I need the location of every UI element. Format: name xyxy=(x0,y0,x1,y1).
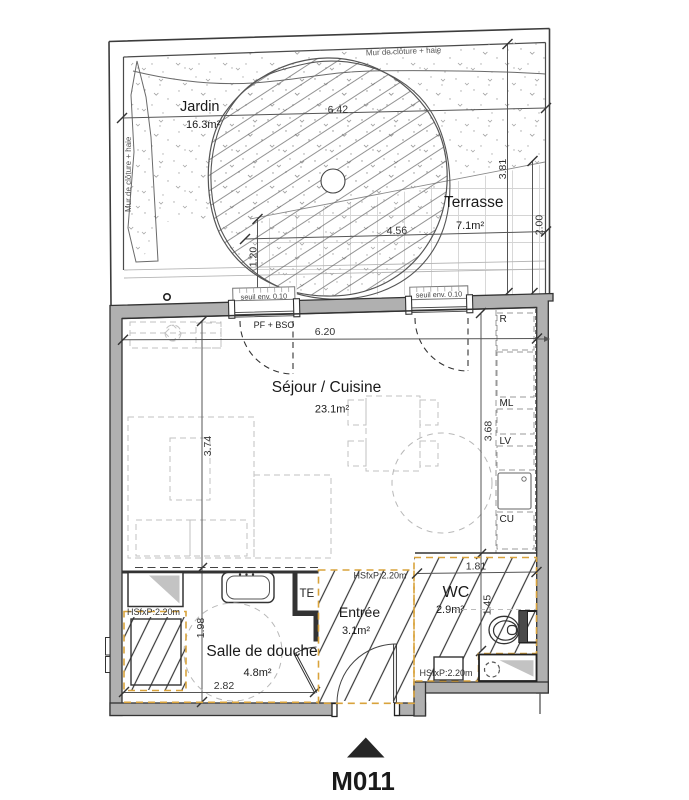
svg-text:LV: LV xyxy=(500,436,512,447)
svg-text:Entrée: Entrée xyxy=(339,604,380,620)
svg-text:HSfxP:2.20m: HSfxP:2.20m xyxy=(127,607,180,617)
svg-text:1.20: 1.20 xyxy=(248,247,260,268)
svg-text:16.3m²: 16.3m² xyxy=(186,119,221,131)
svg-text:2.9m²: 2.9m² xyxy=(436,604,464,616)
svg-text:Terrasse: Terrasse xyxy=(444,194,503,211)
svg-text:ML: ML xyxy=(500,398,514,409)
svg-text:6.20: 6.20 xyxy=(315,326,336,338)
svg-text:2.00: 2.00 xyxy=(534,215,546,236)
svg-text:3.74: 3.74 xyxy=(202,436,214,457)
svg-text:M011: M011 xyxy=(331,766,395,796)
svg-text:6.42: 6.42 xyxy=(328,104,349,116)
svg-text:2.82: 2.82 xyxy=(214,680,235,692)
svg-text:CU: CU xyxy=(500,514,514,525)
svg-text:Séjour / Cuisine: Séjour / Cuisine xyxy=(272,379,381,396)
svg-text:3.81: 3.81 xyxy=(497,159,509,180)
svg-text:3.1m²: 3.1m² xyxy=(342,625,370,637)
svg-text:23.1m²: 23.1m² xyxy=(315,404,350,416)
svg-text:Jardin: Jardin xyxy=(180,99,220,115)
svg-text:HSfxP:2.20m: HSfxP:2.20m xyxy=(354,571,407,581)
svg-text:PF + BSO: PF + BSO xyxy=(254,320,295,330)
svg-text:seuil env. 0.10: seuil env. 0.10 xyxy=(241,291,288,301)
svg-text:R: R xyxy=(500,314,507,325)
svg-text:1.98: 1.98 xyxy=(195,618,207,639)
svg-text:WC: WC xyxy=(443,584,470,601)
svg-text:4.56: 4.56 xyxy=(387,225,408,237)
svg-text:seuil env. 0.10: seuil env. 0.10 xyxy=(416,289,463,299)
svg-text:1.81: 1.81 xyxy=(466,561,487,573)
svg-text:4.8m²: 4.8m² xyxy=(243,667,271,679)
svg-text:TE: TE xyxy=(300,588,315,600)
svg-text:7.1m²: 7.1m² xyxy=(456,220,484,232)
svg-text:Mur de clôture + haie: Mur de clôture + haie xyxy=(124,136,133,212)
svg-text:3.68: 3.68 xyxy=(483,421,495,442)
svg-text:Salle de douche: Salle de douche xyxy=(206,643,317,660)
svg-text:HSfxP:2.20m: HSfxP:2.20m xyxy=(420,668,473,678)
